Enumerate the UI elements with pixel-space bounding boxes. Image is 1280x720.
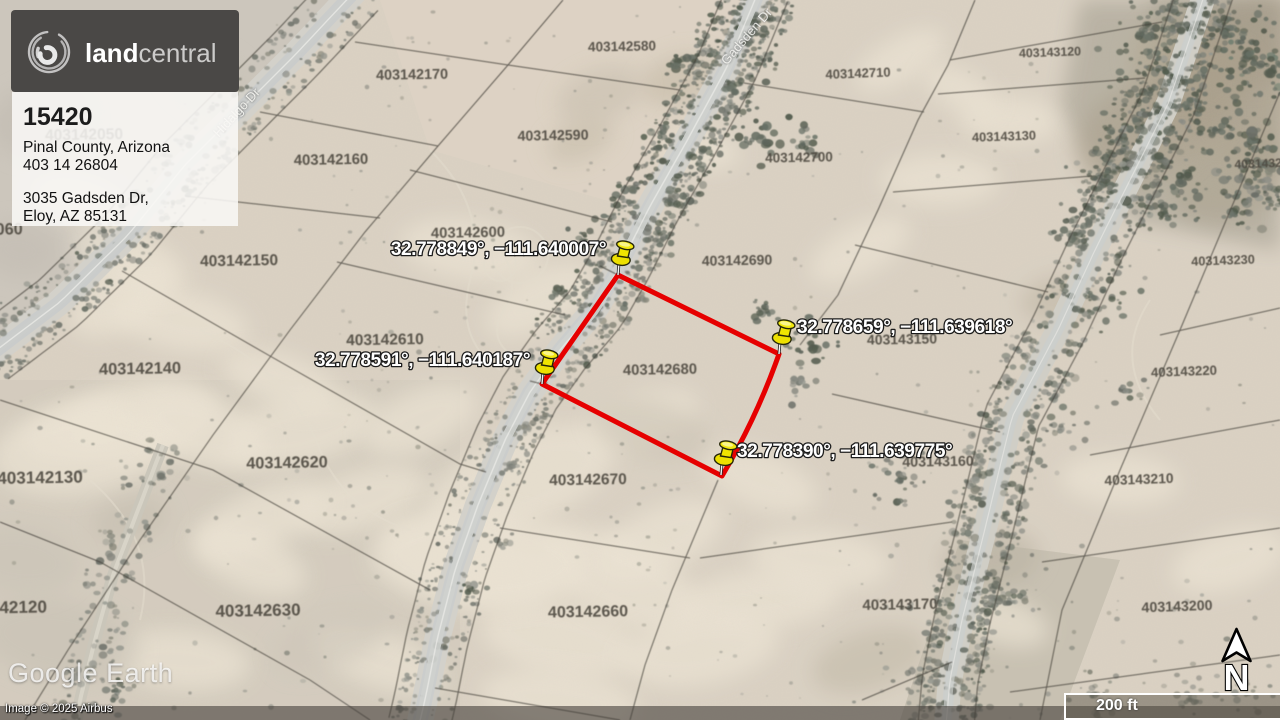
svg-text:N: N [1224, 657, 1250, 696]
svg-text:403143220: 403143220 [1151, 363, 1217, 380]
svg-text:403142620: 403142620 [246, 453, 328, 472]
svg-text:403142710: 403142710 [825, 65, 891, 82]
svg-text:403142630: 403142630 [215, 600, 300, 620]
svg-text:403142700: 403142700 [765, 149, 833, 165]
svg-text:403142670: 403142670 [549, 471, 627, 489]
svg-text:403142580: 403142580 [588, 38, 656, 54]
svg-text:403142690: 403142690 [702, 251, 773, 268]
svg-text:32.778591°, −111.640187°: 32.778591°, −111.640187° [315, 350, 530, 371]
svg-text:403143130: 403143130 [972, 127, 1037, 144]
svg-text:403142170: 403142170 [376, 67, 448, 84]
svg-text:403143210: 403143210 [1104, 471, 1174, 488]
svg-text:32.778659°, −111.639618°: 32.778659°, −111.639618° [797, 317, 1012, 338]
svg-text:403142610: 403142610 [346, 331, 424, 349]
svg-text:403142160: 403142160 [294, 152, 369, 169]
svg-text:403142590: 403142590 [517, 127, 588, 144]
svg-text:403142130: 403142130 [0, 467, 83, 487]
svg-text:403143240: 403143240 [1234, 155, 1280, 171]
svg-text:403142150: 403142150 [200, 252, 279, 270]
svg-text:403142660: 403142660 [548, 603, 628, 621]
svg-text:32.778849°, −111.640007°: 32.778849°, −111.640007° [391, 239, 606, 260]
svg-text:403142120: 403142120 [0, 596, 47, 617]
svg-text:403143120: 403143120 [1019, 44, 1082, 60]
svg-text:403143170: 403143170 [862, 596, 937, 614]
svg-text:403143200: 403143200 [1141, 598, 1213, 616]
svg-text:403142140: 403142140 [99, 359, 181, 378]
svg-text:403142680: 403142680 [623, 362, 697, 379]
svg-text:32.778390°, −111.639775°: 32.778390°, −111.639775° [737, 441, 952, 462]
svg-text:403143230: 403143230 [1191, 252, 1255, 268]
